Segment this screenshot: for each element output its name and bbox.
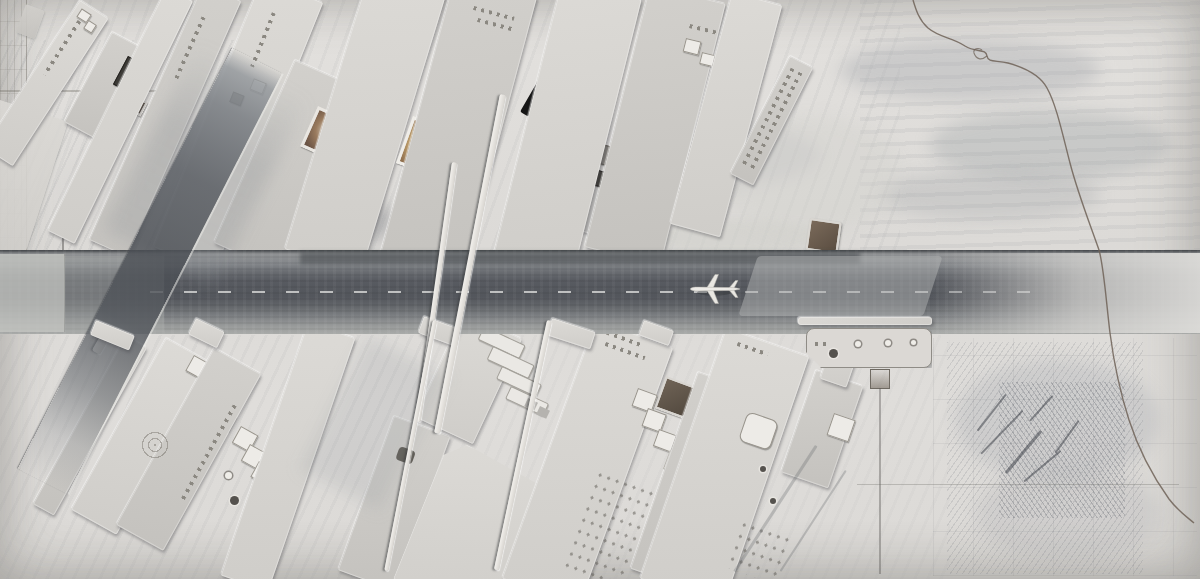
rounded-board xyxy=(806,328,932,368)
runway-pale-end-right xyxy=(930,253,1200,333)
pin-row xyxy=(815,342,828,346)
solder-pad xyxy=(829,349,838,358)
airplane-tail-lower xyxy=(729,290,738,298)
artwork-photo xyxy=(0,0,1200,579)
solder-pad xyxy=(230,496,239,505)
dark-plate xyxy=(806,218,842,254)
cloud-smudge xyxy=(930,110,1170,180)
pin-row xyxy=(43,20,81,76)
rounded-board-strip xyxy=(798,317,932,325)
cloud-smudge xyxy=(840,40,1100,100)
solder-pad xyxy=(885,340,891,346)
airplane-fuselage xyxy=(691,287,741,291)
runway-centerline xyxy=(745,291,1045,293)
pin-row xyxy=(180,404,237,502)
hatch-area-dense xyxy=(999,382,1125,518)
spiral-mark xyxy=(138,430,172,460)
airplane-wing-upper xyxy=(707,275,719,289)
runway-wedge xyxy=(738,256,942,316)
solder-pad xyxy=(760,466,766,472)
solder-pad xyxy=(225,472,232,479)
pencil-line-vertical xyxy=(879,388,881,574)
runway-centerline xyxy=(150,291,710,293)
solder-pad xyxy=(855,341,861,347)
airplane-tail-upper xyxy=(729,281,738,289)
slot-notch xyxy=(536,406,550,419)
solder-pad xyxy=(911,340,916,345)
airplane xyxy=(689,272,741,306)
solder-pad xyxy=(770,498,776,504)
cloud-smudge xyxy=(880,170,1100,220)
runway-pale-end-left xyxy=(0,254,65,332)
sketch-blocks xyxy=(933,338,1197,576)
outline-square xyxy=(870,369,890,389)
